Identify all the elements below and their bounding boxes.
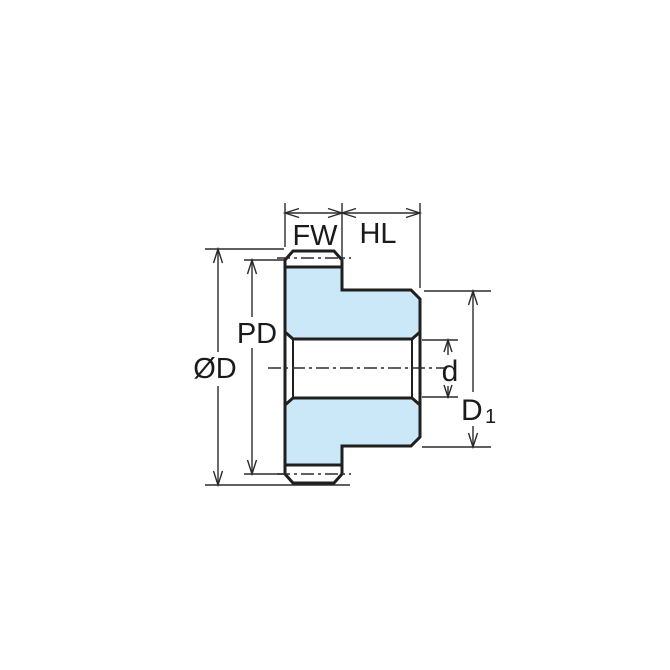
gear-body-lower-half [285,398,420,465]
label-face-width: FW [292,220,338,252]
label-hub-diameter: D [461,394,483,427]
label-bore-diameter: d [442,355,459,388]
gear-tooth-top [285,251,342,267]
gear-cross-section-drawing: FW HL ØD PD [0,0,670,670]
label-outer-diameter: ØD [193,353,237,385]
gear-dimension-diagram: FW HL ØD PD [0,0,670,670]
label-hub-length: HL [359,218,396,250]
label-hub-diameter-subscript: 1 [485,406,496,428]
gear-body [285,251,420,483]
gear-body-upper-half [285,267,420,339]
label-pitch-diameter: PD [237,318,277,350]
dimension-hub-diameter: D 1 [422,291,496,447]
dimension-pitch-diameter: PD [237,260,284,474]
